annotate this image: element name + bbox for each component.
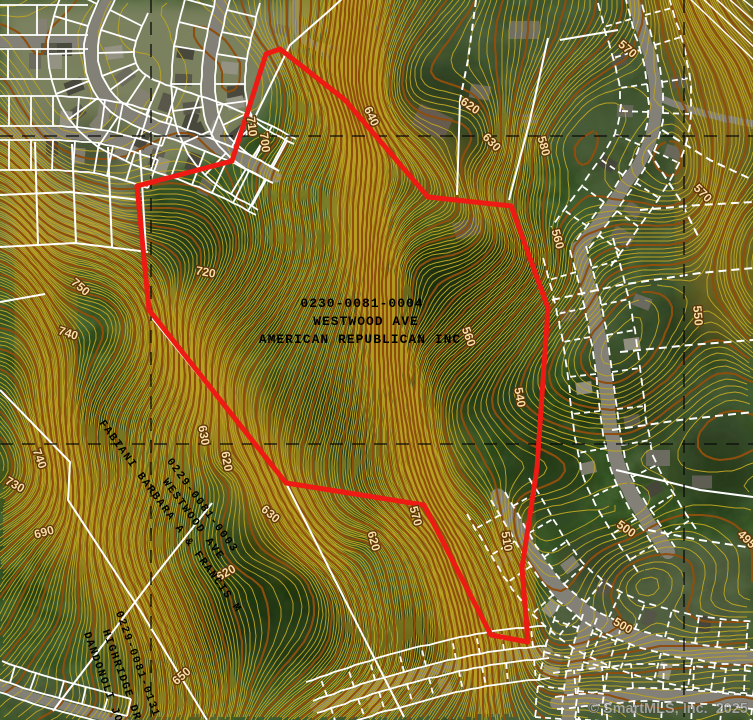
svg-text:WESTWOOD AVE: WESTWOOD AVE	[313, 314, 419, 329]
svg-text:0230-0081-0004: 0230-0081-0004	[300, 296, 423, 311]
svg-text:700: 700	[257, 132, 273, 154]
svg-text:AMERICAN REPUBLICAN INC: AMERICAN REPUBLICAN INC	[259, 332, 461, 347]
svg-text:550: 550	[690, 305, 706, 326]
svg-text:© SmartMLS, Inc. 2025: © SmartMLS, Inc. 2025	[588, 701, 748, 717]
